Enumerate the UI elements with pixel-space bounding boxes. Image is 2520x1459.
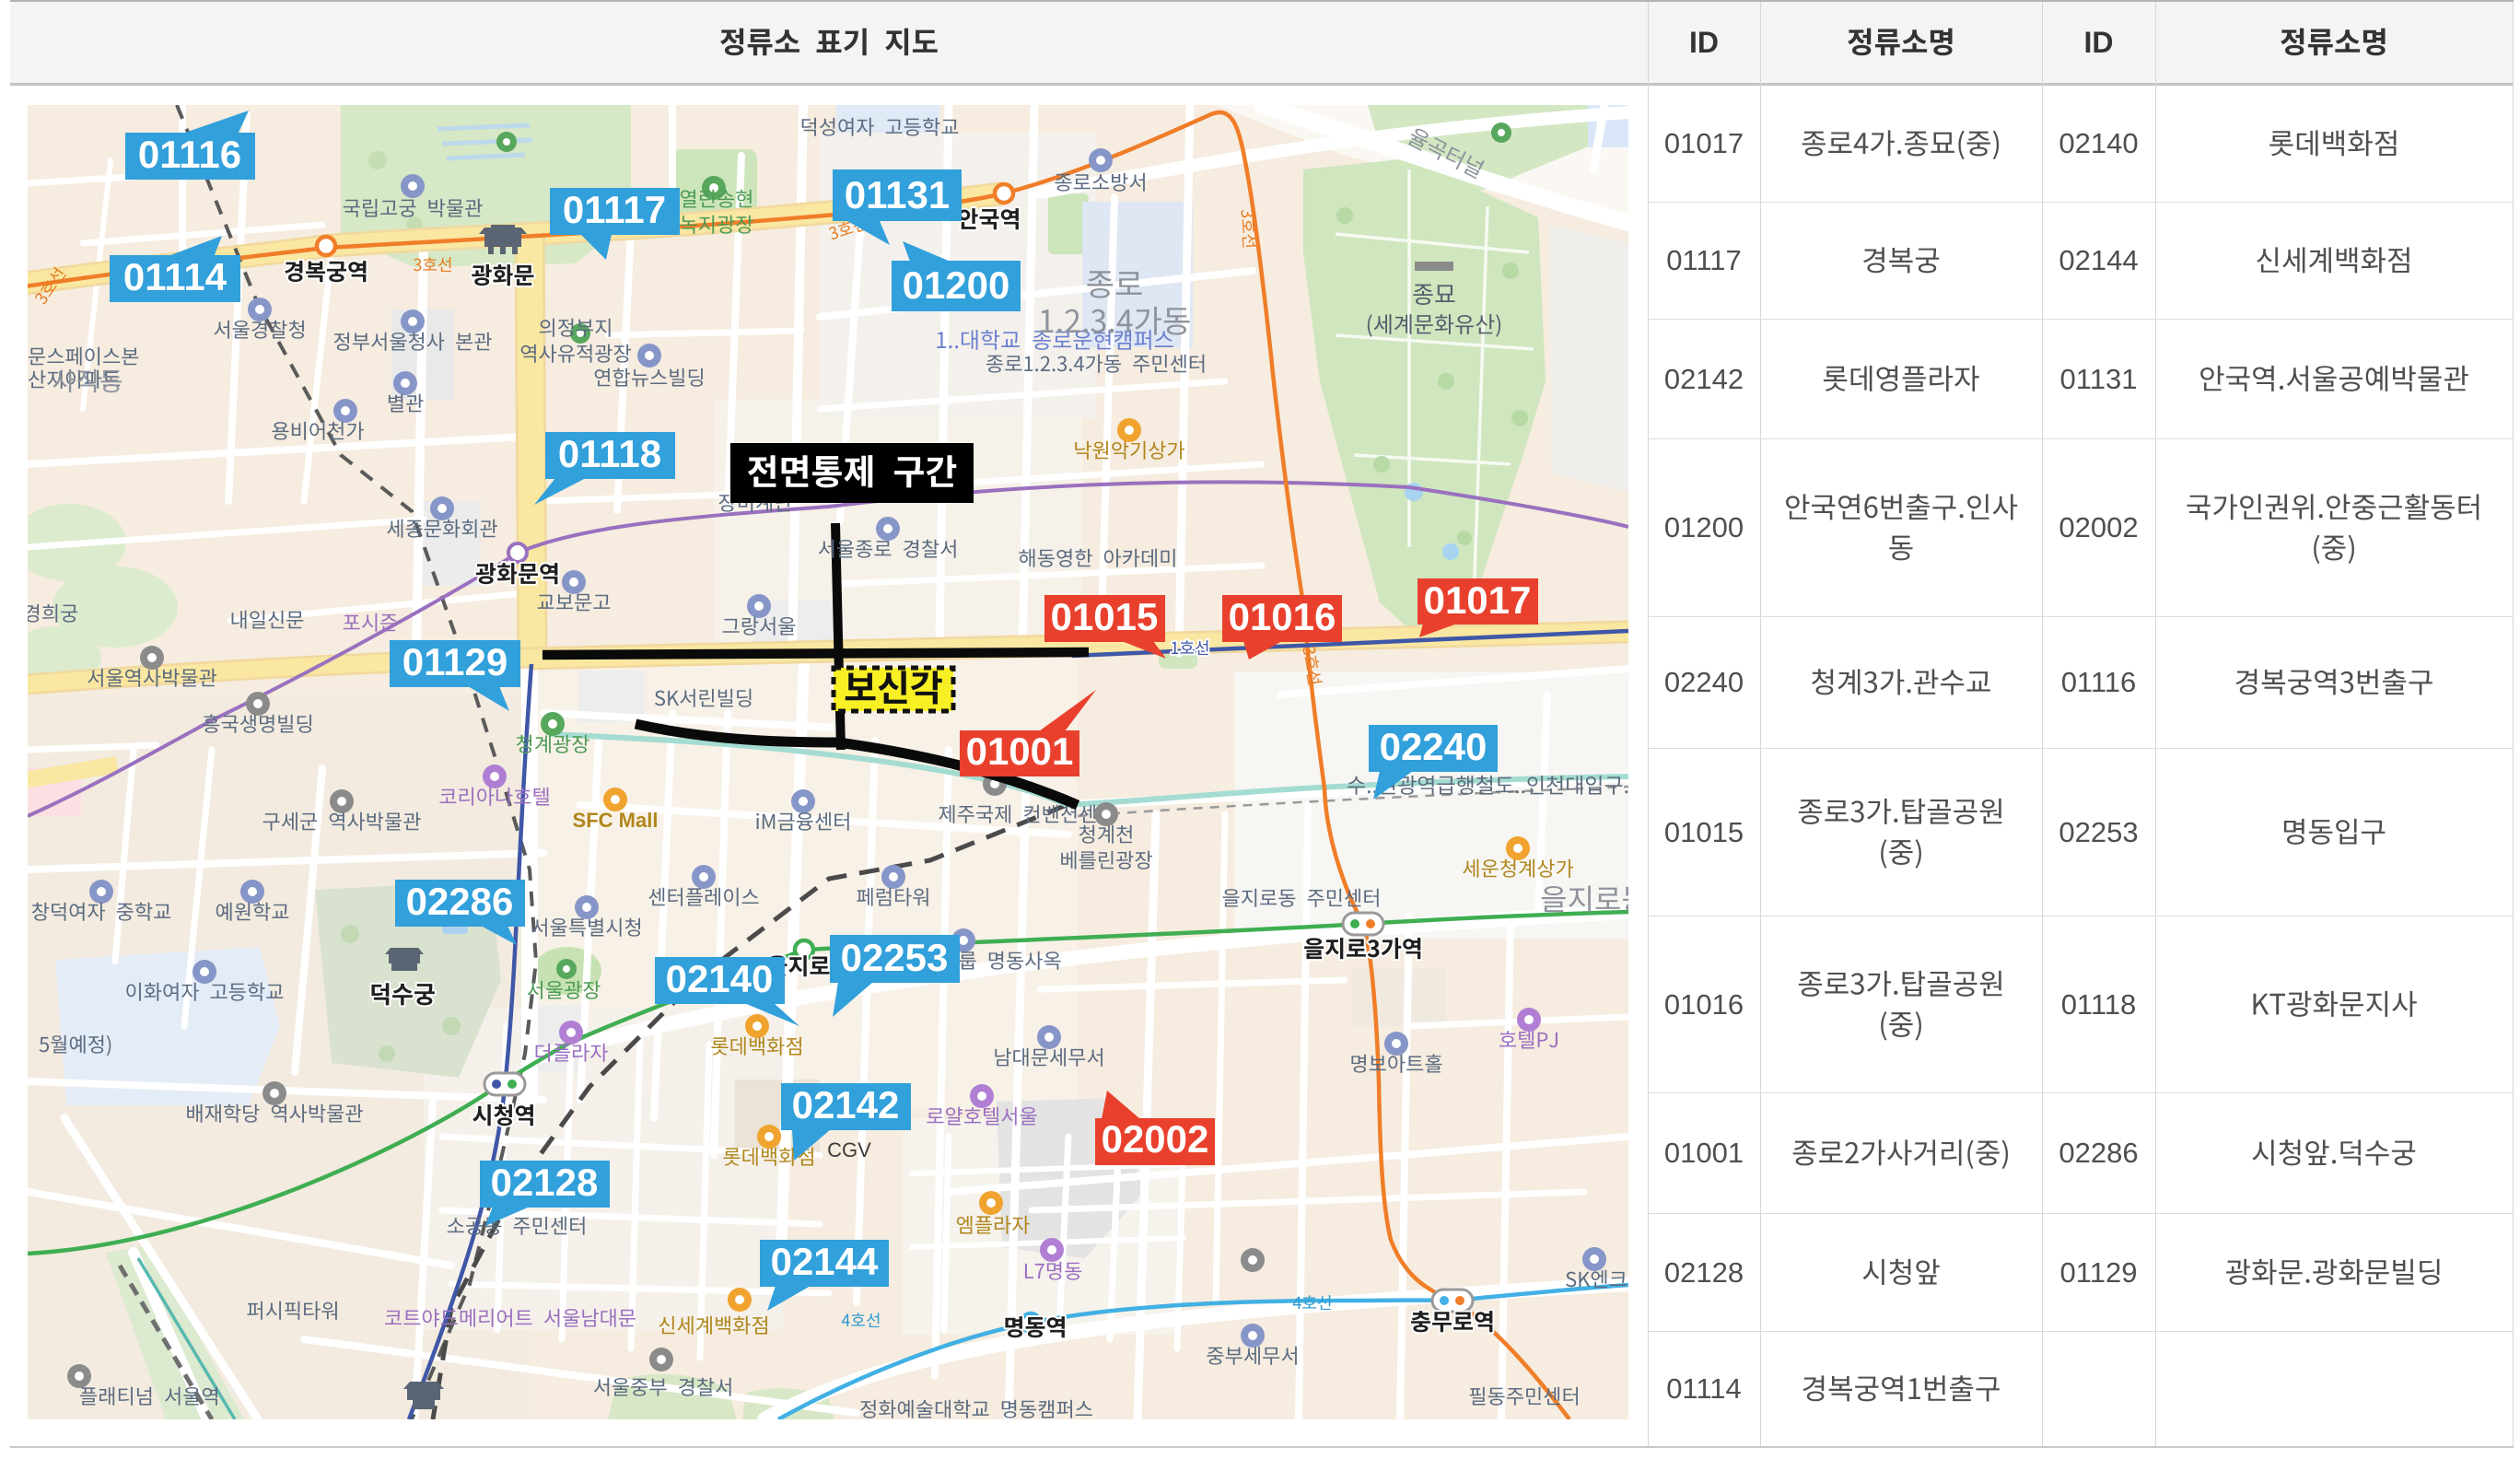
svg-text:CGV: CGV: [827, 1138, 871, 1161]
svg-text:02286: 02286: [406, 880, 514, 923]
svg-text:02128: 02128: [491, 1161, 599, 1204]
svg-text:01200: 01200: [903, 263, 1010, 307]
svg-text:01016: 01016: [1229, 595, 1336, 638]
svg-text:01001: 01001: [966, 729, 1074, 773]
svg-text:01129: 01129: [402, 640, 507, 683]
svg-text:01117: 01117: [563, 188, 666, 231]
svg-text:02002: 02002: [1102, 1117, 1209, 1161]
svg-text:02240: 02240: [1380, 725, 1487, 768]
svg-text:01116: 01116: [138, 133, 241, 176]
svg-text:02253: 02253: [841, 936, 949, 979]
svg-text:02142: 02142: [792, 1083, 900, 1126]
svg-text:01114: 01114: [123, 255, 227, 298]
svg-text:02144: 02144: [771, 1240, 879, 1283]
svg-text:SFC Mall: SFC Mall: [573, 809, 659, 832]
svg-text:01131: 01131: [845, 173, 950, 216]
svg-text:01017: 01017: [1424, 578, 1532, 622]
svg-text:01118: 01118: [558, 432, 661, 475]
svg-text:02140: 02140: [666, 957, 774, 1000]
svg-text:01015: 01015: [1051, 595, 1159, 638]
